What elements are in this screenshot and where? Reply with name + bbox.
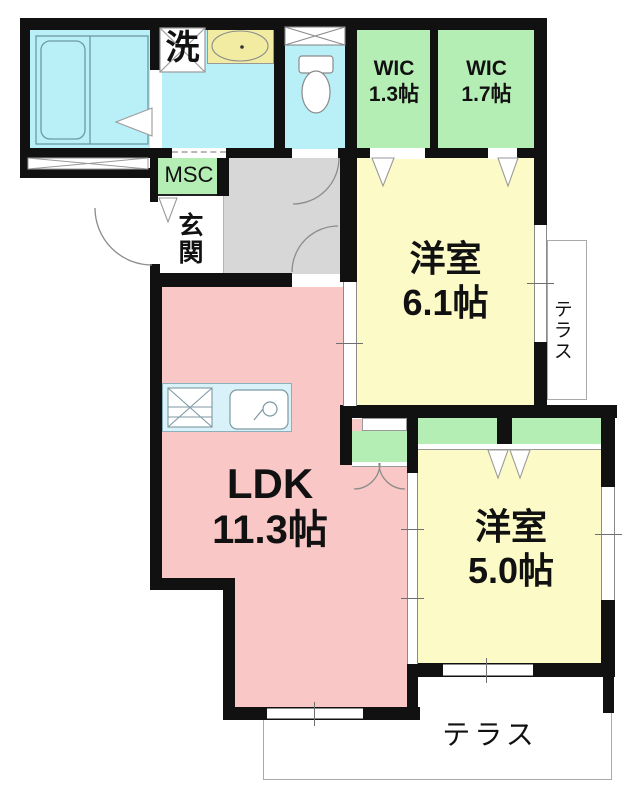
laundry-label: 洗 [160, 31, 205, 66]
wall-segment [150, 158, 158, 202]
entrance-label: 玄関 [176, 204, 202, 274]
window-tick [401, 598, 424, 599]
window-tick [486, 658, 487, 683]
wall-segment [340, 418, 352, 465]
washroom-sliding-door [172, 151, 226, 153]
wall-segment [534, 18, 547, 160]
wic-small-door-opening [370, 149, 425, 159]
wall-segment [601, 405, 615, 487]
wic-large-door-opening [488, 149, 517, 159]
ldk-size: 11.3帖 [160, 510, 380, 552]
washbasin-counter [207, 28, 274, 64]
ldk-label: LDK [160, 462, 380, 506]
hall-floor [223, 158, 340, 274]
sliding-door-ldk-bedroom-main [343, 282, 357, 406]
bedroom-second-label: 洋室 [418, 508, 604, 545]
kitchen-counter [162, 383, 292, 432]
wall-segment [226, 148, 292, 158]
window-ldk-bottom [267, 708, 363, 719]
wall-segment [223, 590, 235, 720]
wall-segment [150, 578, 235, 590]
hall-ldk-door-opening [292, 274, 340, 286]
wall-segment [274, 28, 285, 150]
terrace-bottom-extension [418, 677, 612, 720]
toilet-door-opening [292, 149, 338, 158]
wall-segment [20, 148, 153, 158]
wic-large-label: WIC [438, 58, 535, 80]
wall-segment [150, 148, 172, 158]
bedroom-second-closet-left [418, 418, 497, 444]
sliding-door-ldk-bedroom-second [407, 473, 418, 664]
floor-plan: 洗 WIC 1.3帖 WIC 1.7帖 MSC 玄関 洋室 6.1帖 洋室 5.… [0, 0, 635, 800]
wall-segment [340, 158, 357, 282]
wall-segment [407, 418, 418, 473]
terrace-bottom-label: テラス [400, 720, 580, 749]
wall-segment [497, 418, 512, 444]
wall-segment [603, 677, 614, 713]
msc-label: MSC [158, 164, 220, 187]
bedroom-main-label: 洋室 [357, 240, 534, 277]
bedroom-second-closet-right [512, 418, 601, 444]
closet-sill [418, 444, 601, 450]
window-tick [336, 343, 363, 344]
wall-segment [534, 160, 547, 225]
bathroom-floor [30, 30, 150, 148]
wall-segment [430, 18, 438, 150]
entrance-door-opening [148, 202, 162, 264]
wic-small-size: 1.3帖 [357, 84, 431, 106]
wic-small-label: WIC [357, 58, 431, 80]
washroom-door-opening [172, 148, 226, 158]
wall-segment [517, 148, 547, 158]
wall-segment [150, 273, 292, 287]
window-tick [314, 702, 315, 726]
wall-segment [338, 148, 370, 158]
wall-segment [345, 18, 357, 150]
wic-large-size: 1.7帖 [438, 84, 535, 106]
entrance-door-arc [95, 208, 152, 265]
wall-segment [534, 342, 547, 405]
toilet-floor [285, 45, 345, 149]
wall-niche [362, 418, 407, 431]
ldk-closet [352, 431, 407, 462]
bedroom-second-size: 5.0帖 [418, 552, 604, 589]
bedroom-main-size: 6.1帖 [357, 284, 534, 321]
terrace-side-label: テラス [551, 284, 571, 376]
window-bedroom-second-bottom [443, 664, 533, 676]
exterior-notch [150, 590, 223, 720]
wall-segment [20, 168, 150, 178]
wall-segment [425, 148, 488, 158]
wall-segment [340, 405, 617, 418]
